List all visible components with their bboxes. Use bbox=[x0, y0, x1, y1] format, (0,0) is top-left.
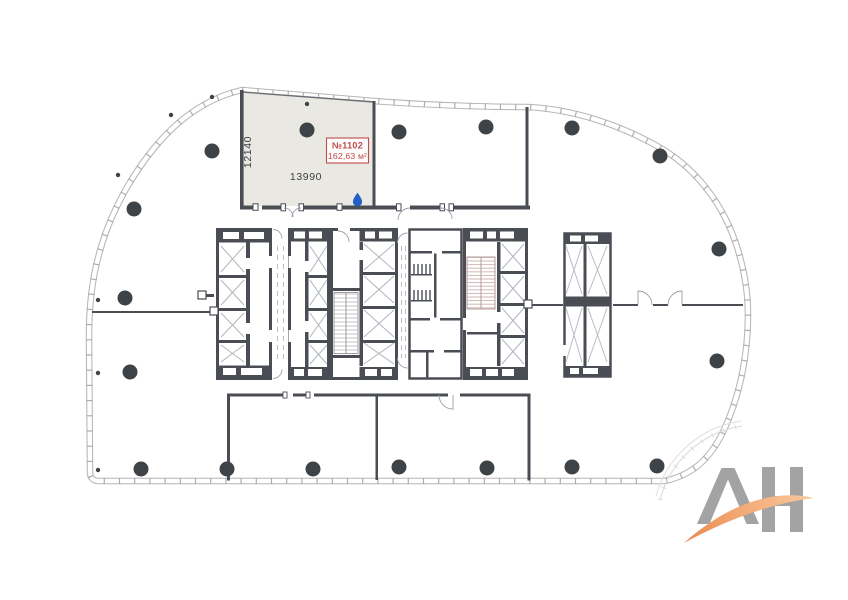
column bbox=[118, 291, 133, 306]
column bbox=[479, 120, 494, 135]
vent-shaft-hatch bbox=[411, 290, 432, 300]
column bbox=[306, 462, 321, 477]
column bbox=[712, 242, 727, 257]
core-block-stair-2 bbox=[463, 230, 527, 379]
column bbox=[710, 354, 725, 369]
core-corridor-1 bbox=[278, 246, 284, 362]
core-block-elevators-3 bbox=[563, 234, 611, 377]
unit-number-label: №1102 bbox=[332, 141, 363, 151]
column bbox=[653, 149, 668, 164]
column bbox=[205, 144, 220, 159]
column bbox=[123, 365, 138, 380]
column bbox=[220, 462, 235, 477]
column bbox=[480, 461, 495, 476]
column bbox=[565, 460, 580, 475]
unit-area-label: 162,63 м² bbox=[328, 151, 367, 161]
core-corridor-2 bbox=[402, 246, 406, 358]
dimension-horizontal: 13990 bbox=[290, 171, 322, 183]
partition-wall-x527 bbox=[526, 107, 529, 206]
unit-label-box[interactable]: №1102 162,63 м² bbox=[327, 138, 369, 163]
vent-shaft-hatch bbox=[411, 264, 432, 274]
unit-1102-right-wall bbox=[373, 101, 376, 206]
core-block-stair-1 bbox=[332, 228, 397, 379]
core-blocks bbox=[218, 228, 611, 379]
column bbox=[392, 460, 407, 475]
agency-logo bbox=[656, 421, 814, 543]
core-block-elevators-2 bbox=[289, 230, 329, 379]
column bbox=[127, 202, 142, 217]
dimension-vertical: 12140 bbox=[242, 136, 254, 168]
floor-plan-canvas: 12140 13990 №1102 162,63 м² bbox=[0, 0, 848, 600]
column bbox=[134, 462, 149, 477]
partition-wall-x529 bbox=[528, 394, 531, 481]
corridor-wall-right-of-unit bbox=[374, 204, 530, 211]
unit-1102[interactable]: 12140 13990 №1102 162,63 м² bbox=[240, 90, 376, 211]
core-block-elevators-1 bbox=[218, 230, 273, 379]
core-block-service-rooms bbox=[410, 230, 462, 379]
column bbox=[300, 123, 315, 138]
partition-wall-x376 bbox=[376, 395, 379, 480]
column bbox=[392, 125, 407, 140]
column bbox=[565, 121, 580, 136]
unit-minor-dot bbox=[305, 102, 309, 106]
column bbox=[650, 459, 665, 474]
interior-walls-top-band bbox=[374, 107, 530, 211]
floor-plan-svg: 12140 13990 №1102 162,63 м² bbox=[0, 0, 848, 600]
